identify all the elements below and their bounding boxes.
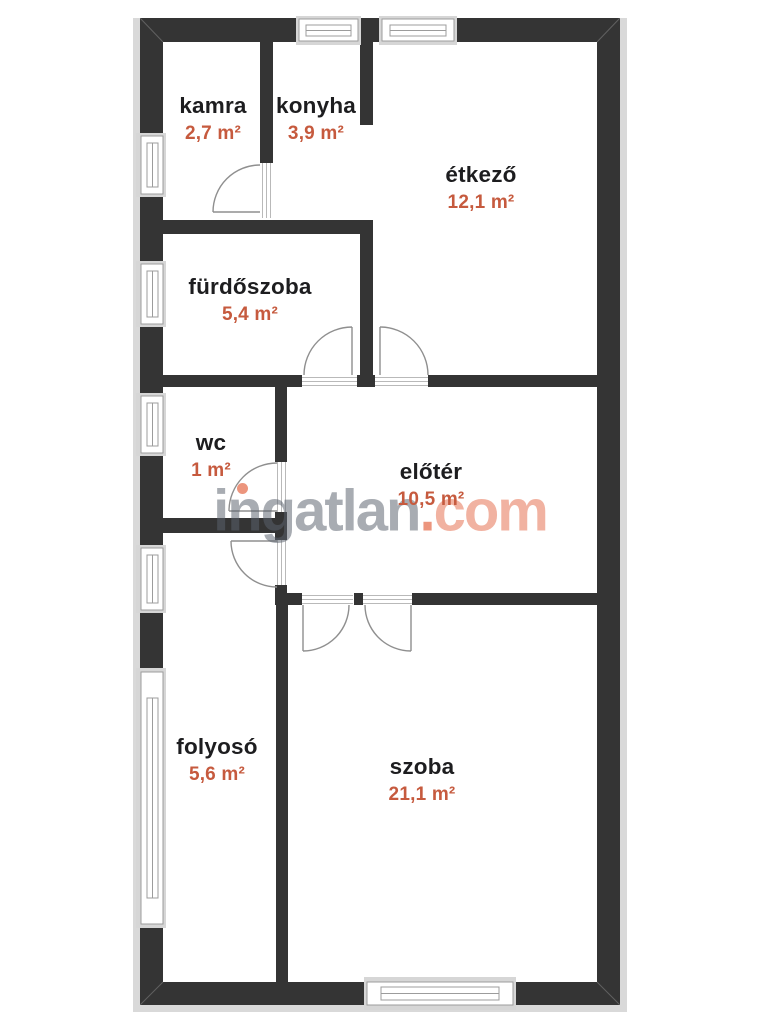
room-name: wc <box>191 430 231 456</box>
room-area: 12,1 m² <box>445 188 516 218</box>
window-room-bottom <box>364 977 516 1010</box>
dining-door-jamb <box>375 374 428 388</box>
room-name: folyosó <box>176 734 257 760</box>
room-label-folyoso: folyosó 5,6 m² <box>176 734 257 790</box>
window-corridor-left-small <box>136 545 166 613</box>
room-label-furdoszoba: fürdőszoba 5,4 m² <box>188 274 311 330</box>
room-label-szoba: szoba 21,1 m² <box>389 754 456 810</box>
room-name: kamra <box>179 93 246 119</box>
window-dining-top <box>379 16 457 45</box>
room-label-eloter: előtér 10,5 m² <box>398 459 465 515</box>
window-kitchen-top <box>296 16 361 45</box>
room-area: 21,1 m² <box>389 780 456 810</box>
room-area: 5,6 m² <box>176 760 257 790</box>
pantry-door-jamb <box>259 163 274 218</box>
room-label-konyha: konyha 3,9 m² <box>276 93 356 149</box>
window-corridor-left-tall <box>136 668 166 928</box>
corridor-door-swing <box>231 541 277 587</box>
room-area: 3,9 m² <box>276 119 356 149</box>
room-area: 1 m² <box>191 456 231 486</box>
floorplan-page: ingatlan.com kamra 2,7 m² konyha 3,9 m² … <box>0 0 760 1024</box>
room-door-left-swing <box>303 605 349 651</box>
window-bathroom-left <box>136 261 166 327</box>
room-name: étkező <box>445 162 516 188</box>
ingatlan-watermark: ingatlan.com <box>213 478 547 545</box>
room-area: 5,4 m² <box>188 300 311 330</box>
door-swings <box>213 165 428 651</box>
room-area: 2,7 m² <box>179 119 246 149</box>
room-name: előtér <box>398 459 465 485</box>
dining-door-swing <box>380 327 428 375</box>
room-name: fürdőszoba <box>188 274 311 300</box>
room-label-wc: wc 1 m² <box>191 430 231 486</box>
room-name: konyha <box>276 93 356 119</box>
room-label-etkezo: étkező 12,1 m² <box>445 162 516 218</box>
room-door-right-swing <box>365 605 411 651</box>
pantry-door-swing <box>213 165 260 212</box>
room-name: szoba <box>389 754 456 780</box>
corridor-door-jamb <box>274 540 288 585</box>
room-label-kamra: kamra 2,7 m² <box>179 93 246 149</box>
window-wc-left <box>136 393 166 456</box>
room-area: 10,5 m² <box>398 485 465 515</box>
bathroom-door-swing <box>304 327 352 375</box>
watermark-i-dot <box>237 483 248 494</box>
window-pantry-left <box>136 133 166 197</box>
bathroom-door-jamb <box>302 374 357 388</box>
